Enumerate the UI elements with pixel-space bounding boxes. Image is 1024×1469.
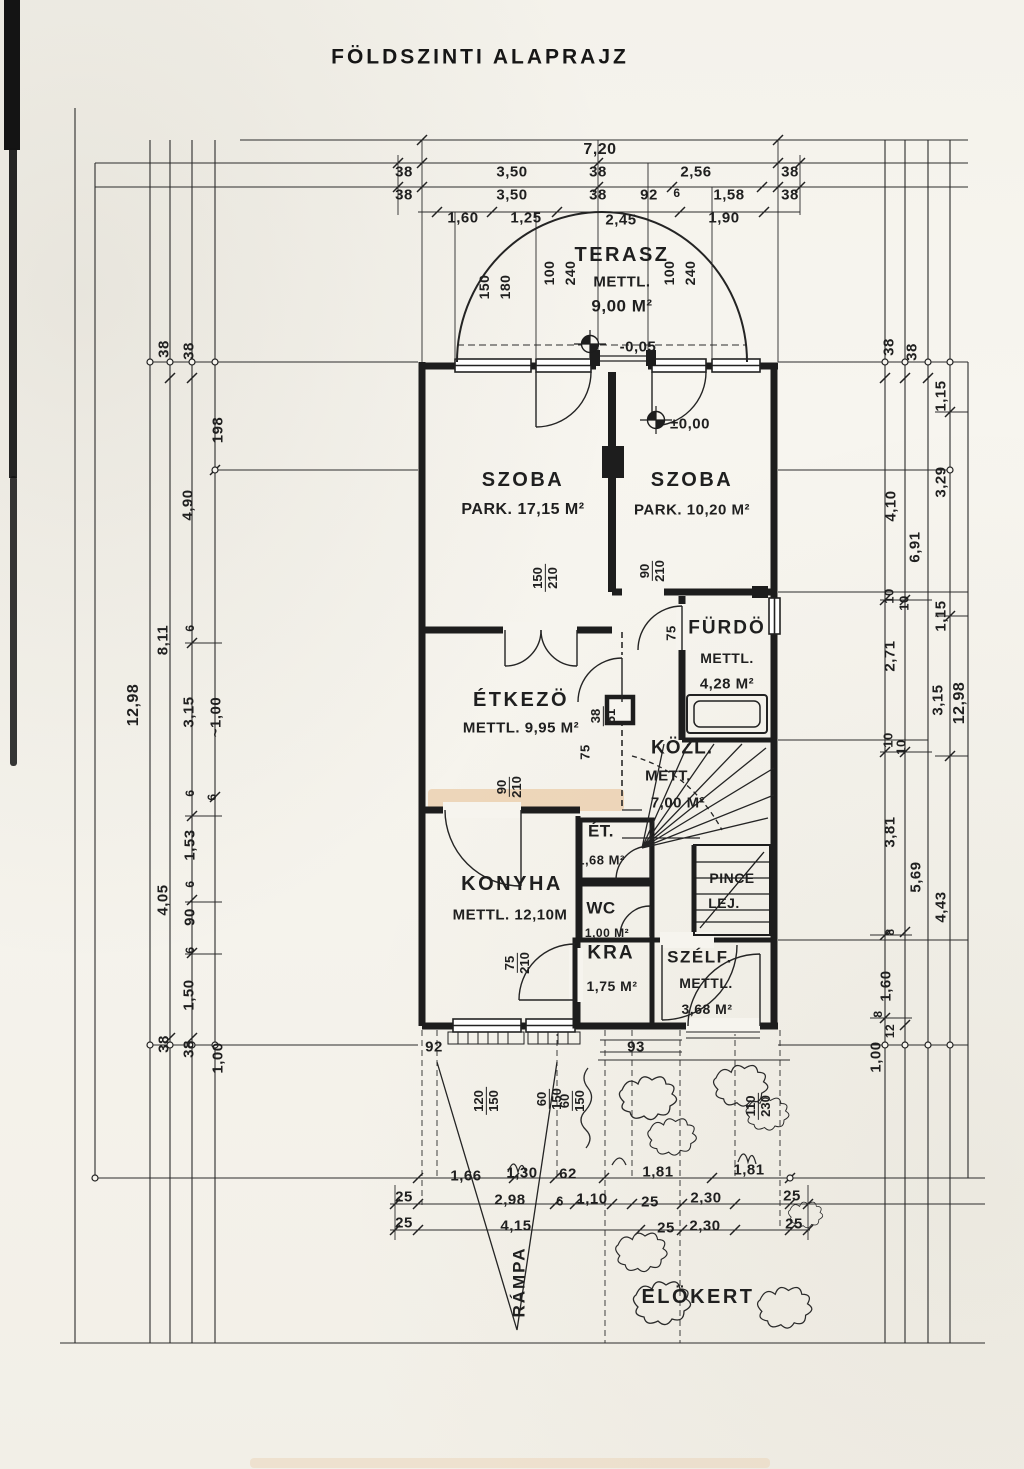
dim-value: 75 — [503, 953, 518, 973]
dim-label: 38 — [781, 165, 799, 180]
room-area: 3,68 M² — [682, 1002, 733, 1016]
dim-label: 3,50 — [496, 165, 527, 180]
room-label-wc: WC — [586, 900, 615, 917]
dim-label: 10 — [898, 595, 911, 610]
level-label: -0,05 — [620, 340, 657, 355]
dim-label: 6 — [184, 880, 196, 887]
room-area: 1,00 M² — [585, 927, 629, 939]
door-dim: 75210 — [503, 949, 531, 977]
dim-label: 4,15 — [500, 1219, 531, 1234]
dim-label: 1,15 — [934, 600, 949, 631]
dim-value: 210 — [546, 564, 560, 592]
room-label-et: ÉT. — [588, 823, 614, 840]
dim-label: 62 — [559, 1167, 577, 1182]
dim-label: 150 — [477, 275, 491, 300]
dim-label: 4,43 — [934, 891, 949, 922]
dim-label: 8 — [884, 928, 896, 935]
room-label-kamra: KRA — [587, 944, 634, 963]
dim-label: 240 — [683, 261, 697, 286]
dim-label: 2,30 — [689, 1219, 720, 1234]
dim-label: 1,00 — [869, 1041, 884, 1072]
dim-label: 8 — [872, 1010, 884, 1017]
room-sublabel: METT. — [645, 769, 691, 784]
dim-label: 90 — [183, 908, 198, 926]
dim-label: 3,29 — [934, 466, 949, 497]
room-label-elokert: ELÖKERT — [641, 1287, 754, 1307]
dim-label: 8,11 — [156, 625, 171, 655]
dim-value: 230 — [759, 1092, 773, 1120]
dim-value: 210 — [653, 557, 667, 585]
dim-label: 7,20 — [583, 142, 616, 158]
dim-label: 25 — [641, 1195, 659, 1210]
dim-label: 25 — [395, 1190, 413, 1205]
room-label-konyha: KONYHA — [461, 874, 563, 894]
dim-label: 6 — [206, 793, 218, 800]
dim-value: 150 — [573, 1087, 587, 1115]
level-label: ±0,00 — [670, 417, 710, 432]
room-label-terasz: TERASZ — [575, 245, 670, 265]
dim-label: 1,25 — [510, 211, 541, 226]
dim-value: 90 — [638, 561, 653, 581]
bathtub — [687, 695, 767, 733]
dim-label: 1,66 — [450, 1169, 481, 1184]
dim-label: 38 — [395, 188, 413, 203]
dim-label: 100 — [662, 261, 676, 286]
dim-label: 1,81 — [642, 1165, 673, 1180]
dim-label: 1,81 — [733, 1163, 764, 1178]
dim-label: 1,00 — [211, 1042, 226, 1073]
dim-label: 3,15 — [182, 696, 197, 727]
dim-label: 2,56 — [680, 165, 711, 180]
dim-label: 38 — [157, 340, 172, 358]
dim-label: 6 — [184, 789, 196, 796]
room-area: 4,28 M² — [700, 677, 754, 692]
dim-label: 10 — [883, 588, 896, 603]
room-area: 7,00 M² — [651, 796, 705, 811]
dim-value: 120 — [472, 1087, 487, 1115]
dim-label: 93 — [627, 1040, 645, 1055]
room-label-etkezo: ÉTKEZÖ — [473, 690, 569, 710]
dim-label: 38 — [395, 165, 413, 180]
room-detail: METTL. 12,10M — [453, 908, 568, 923]
dim-label: 38 — [882, 338, 897, 356]
dim-label: 12,98 — [952, 682, 968, 725]
window-dim: 120150 — [472, 1087, 500, 1115]
room-sublabel: METTL. — [700, 651, 754, 665]
room-label-kozl: KÖZL. — [651, 739, 713, 758]
dim-label: 38 — [589, 188, 607, 203]
niche-dim: 3851 — [589, 706, 617, 726]
door-dim: 75 — [579, 744, 592, 759]
dim-label: 38 — [589, 165, 607, 180]
room-sublabel: METTL. — [593, 275, 650, 290]
dim-label: 6 — [184, 624, 196, 631]
dim-label: 38 — [182, 342, 197, 360]
room-label-szoba2: SZOBA — [651, 470, 734, 490]
dim-value: 150 — [487, 1087, 501, 1115]
dim-label: 25 — [783, 1189, 801, 1204]
dim-label: 1,58 — [713, 188, 744, 203]
room-detail: PARK. 17,15 M² — [461, 502, 584, 518]
dim-label: 6 — [673, 187, 680, 199]
dim-label: 1,90 — [708, 211, 739, 226]
dim-label: 10 — [895, 739, 908, 754]
dim-label: 240 — [563, 261, 577, 286]
dim-label: 3,15 — [931, 684, 946, 715]
dim-label: 3,50 — [496, 188, 527, 203]
floor-plan-page: FÖLDSZINTI ALAPRAJZ 7,20 38 3,50 38 2,56… — [0, 0, 1024, 1469]
dim-label: 4,10 — [884, 490, 899, 521]
dim-label: 4,05 — [156, 884, 171, 915]
dim-label: 1,15 — [934, 380, 949, 411]
room-label-rampa: RÁMPA — [511, 1246, 528, 1317]
room-label-szelfogo: SZÉLF. — [667, 949, 733, 966]
closet-boxes — [575, 820, 770, 1026]
dim-value: 60 — [535, 1089, 550, 1109]
dim-value: 38 — [589, 706, 604, 726]
room-label-furdo: FÜRDÖ — [688, 619, 766, 638]
door-dim: 90210 — [638, 557, 666, 585]
dim-label: 25 — [395, 1216, 413, 1231]
dim-label: 1,30 — [506, 1166, 537, 1181]
dim-value: 110 — [744, 1093, 759, 1120]
room-label-pince: LEJ. — [708, 896, 740, 910]
door-dim: 110230 — [744, 1092, 772, 1120]
dim-value: 150 — [531, 564, 546, 592]
room-label-pince: PINCE — [709, 871, 754, 885]
dim-label: 12 — [884, 1024, 896, 1038]
dim-label: 38 — [157, 1035, 172, 1053]
dim-label: ~1,00 — [209, 697, 224, 737]
room-area: 9,00 M² — [591, 298, 652, 315]
dimension-ticks — [165, 135, 955, 1235]
dim-value: 210 — [518, 949, 532, 977]
dim-label: 2,45 — [605, 213, 636, 228]
dim-value: 51 — [604, 706, 618, 726]
room-detail: PARK. 10,20 M² — [634, 503, 750, 518]
dim-value: 60 — [558, 1091, 573, 1111]
dim-label: 38 — [182, 1040, 197, 1058]
window-dim: 60150 — [558, 1087, 586, 1115]
dim-label: 6 — [556, 1195, 564, 1208]
dim-label: 2,71 — [883, 640, 898, 671]
dim-label: 100 — [542, 261, 556, 286]
dim-label: 1,60 — [879, 970, 894, 1001]
door-dim: 150210 — [531, 564, 559, 592]
room-area: 1,68 M² — [577, 854, 625, 867]
dim-label: 92 — [425, 1040, 443, 1055]
dim-value: 210 — [510, 773, 524, 801]
dim-label: 180 — [498, 275, 512, 300]
dim-label: 1,10 — [576, 1192, 607, 1207]
dim-label: 38 — [905, 343, 920, 361]
room-area: 1,75 M² — [587, 979, 638, 993]
dim-label: 1,60 — [447, 211, 478, 226]
dim-label: 12,98 — [126, 684, 142, 727]
dim-label: 6,91 — [908, 531, 923, 562]
door-dim: 90210 — [495, 773, 523, 801]
page-title: FÖLDSZINTI ALAPRAJZ — [331, 47, 629, 68]
dim-value: 90 — [495, 777, 510, 797]
dim-label: 2,98 — [494, 1193, 525, 1208]
dim-label: 1,50 — [182, 979, 197, 1010]
room-sublabel: METTL. — [679, 976, 733, 990]
dim-label: 3,81 — [883, 816, 898, 847]
room-detail: METTL. 9,95 M² — [463, 721, 579, 736]
dim-label: 5,69 — [909, 861, 924, 892]
dim-label: 38 — [781, 188, 799, 203]
dim-label: 25 — [785, 1217, 803, 1232]
dim-label: 92 — [640, 188, 658, 203]
dim-label: 1,53 — [183, 829, 198, 860]
dim-label: 2,30 — [690, 1191, 721, 1206]
dim-label: 6 — [184, 946, 196, 953]
room-label-szoba1: SZOBA — [482, 470, 565, 490]
dim-label: 198 — [211, 417, 226, 444]
dim-label: 4,90 — [181, 489, 196, 520]
door-dim: 75 — [665, 625, 678, 640]
dim-label: 25 — [657, 1221, 675, 1236]
